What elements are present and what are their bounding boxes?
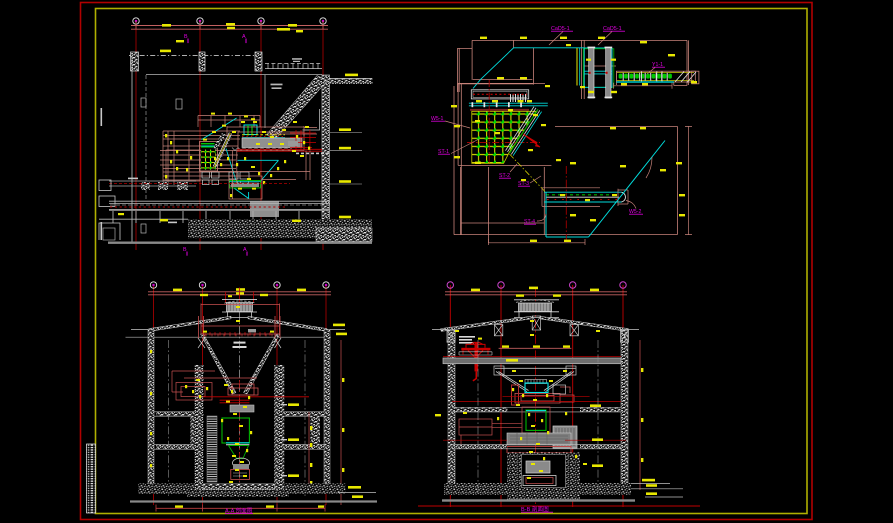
svg-text:A: A [243,247,247,253]
svg-text:A: A [242,34,246,40]
svg-text:B: B [183,247,187,253]
svg-text:B: B [184,34,188,40]
